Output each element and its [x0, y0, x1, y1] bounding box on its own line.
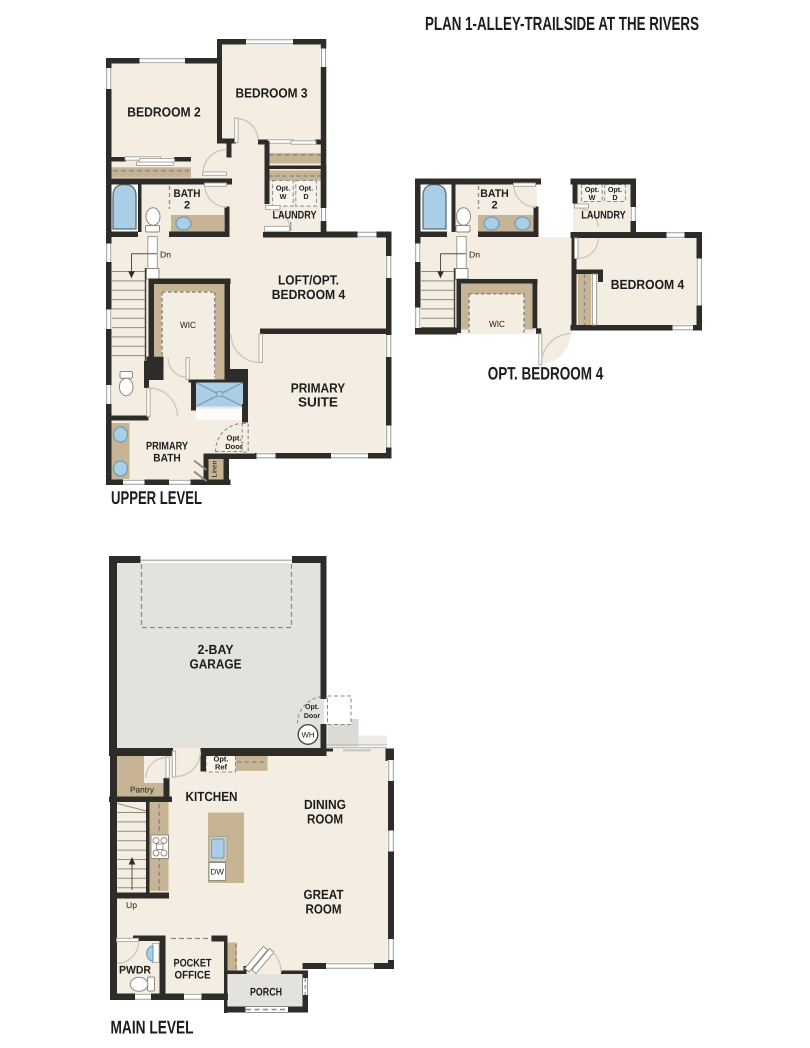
svg-text:LAUNDRY: LAUNDRY	[581, 210, 626, 222]
svg-text:BATH: BATH	[480, 188, 509, 200]
svg-text:Up: Up	[126, 900, 137, 910]
svg-text:BEDROOM 4: BEDROOM 4	[611, 277, 685, 292]
svg-text:DINING: DINING	[304, 797, 346, 812]
svg-text:KITCHEN: KITCHEN	[186, 789, 238, 804]
svg-text:GARAGE: GARAGE	[190, 657, 242, 672]
svg-text:BATH: BATH	[174, 188, 201, 200]
svg-text:Door: Door	[304, 713, 321, 720]
svg-text:W: W	[280, 192, 287, 201]
svg-text:WIC: WIC	[489, 319, 505, 329]
svg-text:BEDROOM 4: BEDROOM 4	[272, 287, 346, 302]
svg-text:WH: WH	[302, 731, 315, 740]
svg-text:Linen: Linen	[212, 460, 219, 477]
svg-text:Dn: Dn	[160, 250, 171, 260]
svg-text:2: 2	[491, 200, 497, 212]
svg-text:MAIN LEVEL: MAIN LEVEL	[111, 1017, 194, 1038]
svg-text:LOFT/OPT.: LOFT/OPT.	[278, 273, 339, 288]
svg-text:ROOM: ROOM	[307, 812, 343, 827]
svg-text:UPPER LEVEL: UPPER LEVEL	[111, 487, 202, 508]
svg-text:D: D	[303, 192, 308, 201]
svg-text:POCKET: POCKET	[174, 958, 212, 970]
svg-text:PRIMARY: PRIMARY	[146, 441, 189, 453]
svg-text:BEDROOM 3: BEDROOM 3	[236, 86, 308, 101]
svg-text:BATH: BATH	[153, 453, 181, 465]
svg-text:PWDR: PWDR	[119, 965, 151, 977]
svg-text:OFFICE: OFFICE	[175, 970, 211, 982]
svg-text:W: W	[589, 193, 596, 202]
svg-text:LAUNDRY: LAUNDRY	[273, 210, 318, 222]
svg-text:2-BAY: 2-BAY	[198, 642, 234, 657]
svg-text:PLAN 1-ALLEY-TRAILSIDE AT THE: PLAN 1-ALLEY-TRAILSIDE AT THE RIVERS	[425, 14, 699, 35]
svg-text:DW: DW	[210, 868, 224, 877]
svg-text:2: 2	[184, 200, 190, 212]
svg-text:Opt.: Opt.	[305, 704, 319, 711]
svg-text:OPT. BEDROOM 4: OPT. BEDROOM 4	[488, 364, 604, 384]
svg-text:Dn: Dn	[469, 250, 480, 260]
svg-text:SUITE: SUITE	[298, 395, 338, 410]
svg-text:Door: Door	[225, 442, 243, 451]
svg-text:PORCH: PORCH	[250, 987, 282, 999]
svg-text:Pantry: Pantry	[130, 785, 155, 795]
svg-text:D: D	[612, 193, 617, 202]
svg-text:Ref: Ref	[215, 763, 228, 772]
svg-text:GREAT: GREAT	[304, 887, 344, 902]
svg-text:WIC: WIC	[180, 320, 196, 330]
svg-text:BEDROOM 2: BEDROOM 2	[127, 105, 201, 120]
svg-text:ROOM: ROOM	[306, 902, 342, 917]
svg-text:PRIMARY: PRIMARY	[291, 381, 346, 396]
